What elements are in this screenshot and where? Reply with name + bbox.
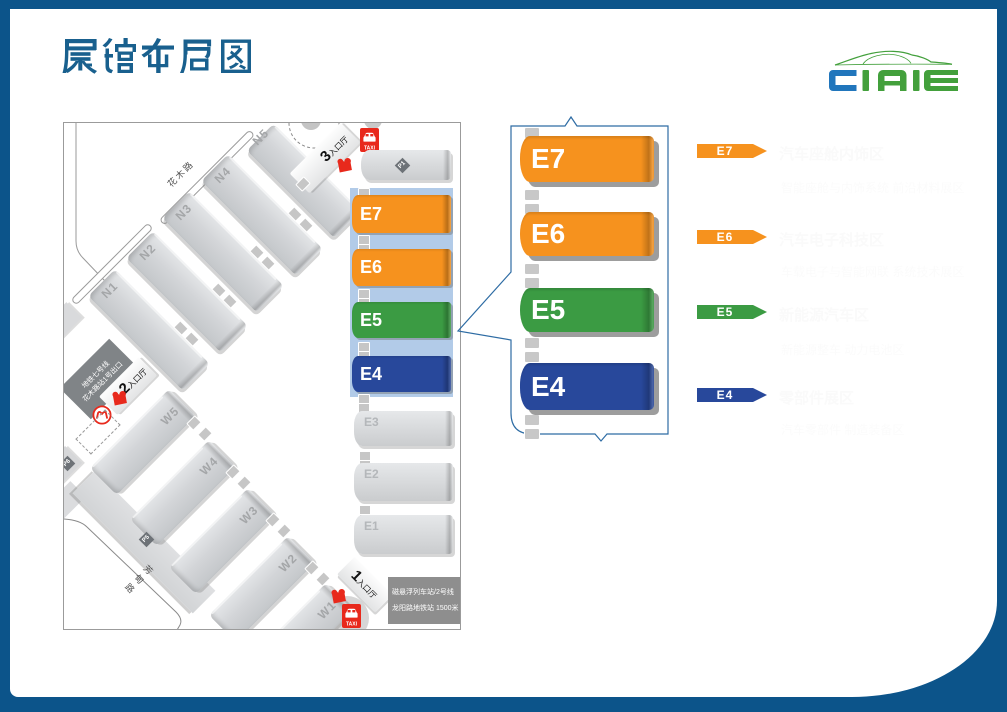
- svg-text:TAXI: TAXI: [346, 622, 358, 628]
